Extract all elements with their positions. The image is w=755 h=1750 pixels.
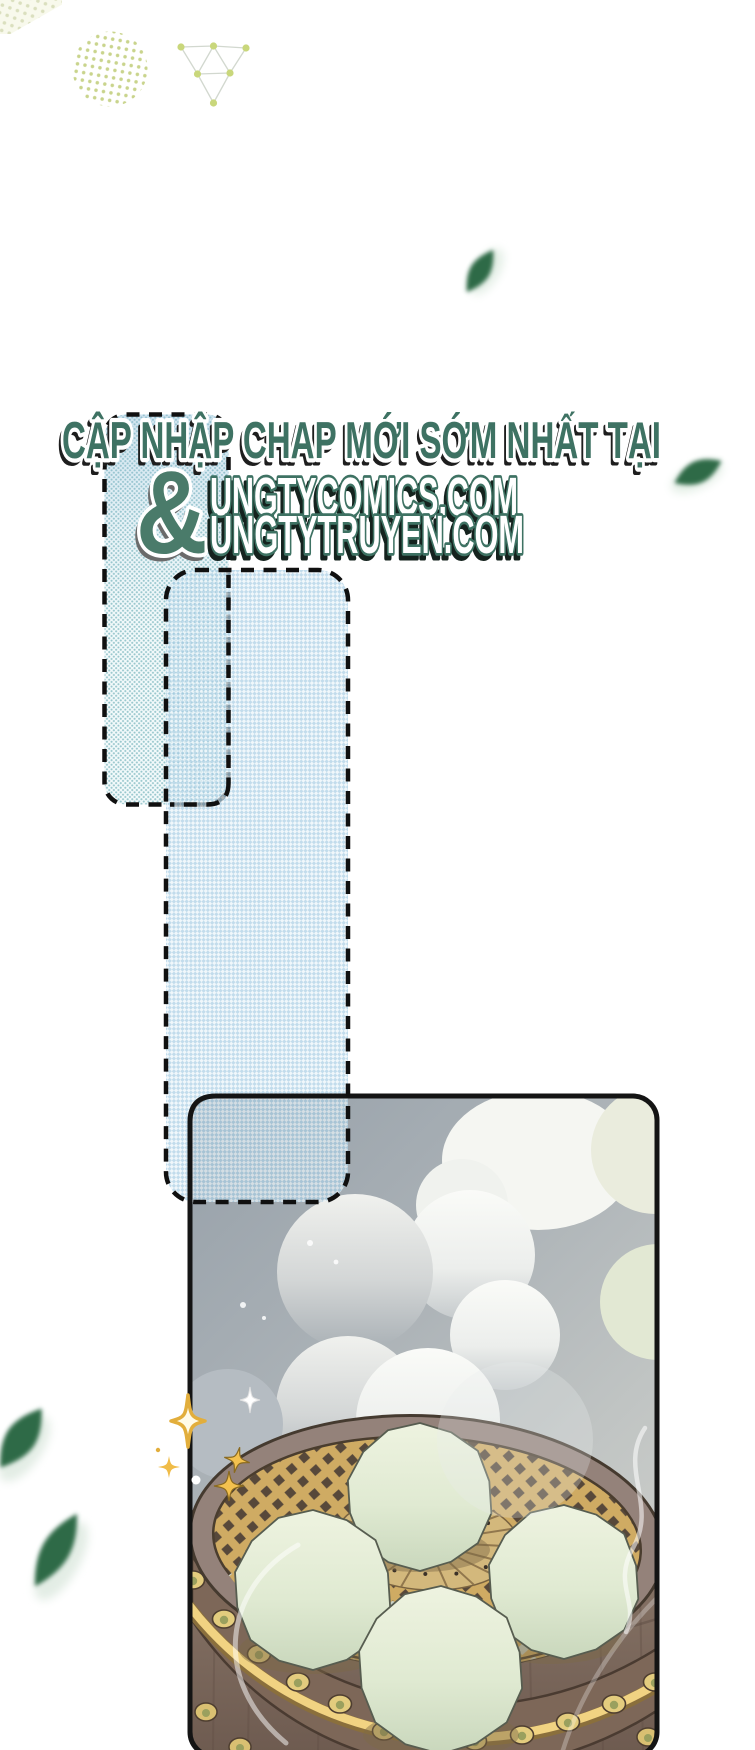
svg-text:&: & <box>136 447 208 579</box>
svg-text:UNGTYTRUYEN.COM: UNGTYTRUYEN.COM <box>210 505 524 565</box>
